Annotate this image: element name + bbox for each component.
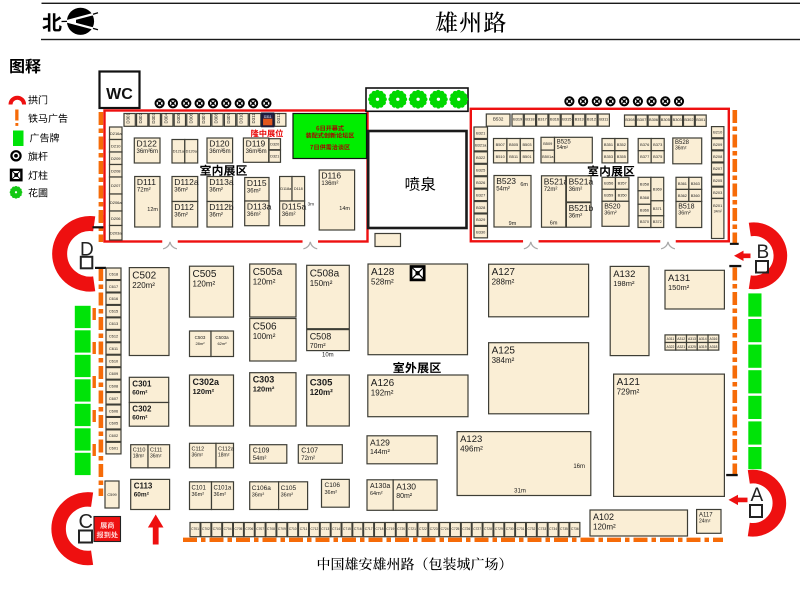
svg-text:36m²: 36m² [252,492,265,498]
svg-text:36m²: 36m² [247,212,261,218]
svg-text:36m²: 36m² [675,146,687,152]
svg-text:B319: B319 [513,116,522,121]
svg-text:36m²: 36m² [174,213,188,219]
svg-text:B303: B303 [673,117,682,122]
svg-text:C729: C729 [495,527,503,531]
svg-text:B326: B326 [476,180,485,185]
svg-text:B521a: B521a [569,176,594,186]
svg-text:B523: B523 [496,176,516,186]
svg-text:384m²: 384m² [492,356,515,365]
svg-text:C107: C107 [301,448,318,455]
svg-text:C106a: C106a [252,485,272,492]
svg-text:C719: C719 [386,527,394,531]
svg-text:A314: A314 [699,337,707,341]
svg-text:24m²: 24m² [699,519,711,525]
svg-text:60m²: 60m² [132,415,148,422]
svg-text:C710: C710 [289,527,297,531]
svg-text:B521a: B521a [544,176,569,186]
svg-text:36m²: 36m² [247,189,261,195]
svg-text:12m: 12m [147,207,158,213]
svg-text:A127: A127 [492,267,516,278]
svg-text:A322: A322 [666,345,674,349]
svg-text:C611: C611 [109,346,118,351]
svg-text:D208: D208 [111,168,121,173]
svg-text:288m²: 288m² [492,278,515,287]
svg-text:54m²: 54m² [557,145,569,151]
svg-text:192m²: 192m² [371,389,394,398]
svg-text:B350: B350 [618,193,628,198]
svg-text:C106: C106 [325,482,341,489]
svg-text:100m²: 100m² [253,332,276,341]
svg-text:C728: C728 [484,527,492,531]
svg-text:B376: B376 [640,142,649,147]
svg-text:36m²: 36m² [209,188,223,194]
svg-text:136m²: 136m² [321,181,338,187]
svg-text:D113a: D113a [209,177,234,187]
svg-text:C505a: C505a [253,267,283,278]
svg-text:D119: D119 [246,139,266,149]
svg-text:C506: C506 [253,322,277,333]
svg-text:C302: C302 [132,405,152,414]
svg-text:144m²: 144m² [370,449,391,456]
svg-text:B: B [757,242,770,263]
svg-text:C615: C615 [109,309,118,314]
svg-text:31m: 31m [514,489,526,495]
svg-text:C608: C608 [109,383,118,388]
svg-text:120m²: 120m² [253,278,276,287]
svg-text:120m²: 120m² [193,280,216,289]
svg-text:B321a: B321a [475,143,487,148]
svg-text:D307: D307 [201,113,206,124]
svg-text:D122: D122 [137,139,158,149]
svg-text:C609: C609 [109,371,118,376]
svg-text:36m²: 36m² [209,149,223,155]
svg-text:A313: A313 [688,337,696,341]
svg-text:B359: B359 [604,193,613,198]
svg-text:D209: D209 [111,156,121,161]
svg-text:34m²: 34m² [714,210,723,214]
svg-text:36m²: 36m² [281,492,294,498]
svg-text:C701: C701 [191,527,199,531]
svg-text:36m²: 36m² [137,149,151,155]
svg-text:28m²: 28m² [195,341,205,346]
svg-text:B325: B325 [476,168,485,173]
svg-text:B317: B317 [538,116,547,121]
svg-text:C716: C716 [354,527,362,531]
svg-text:D301: D301 [126,113,131,124]
svg-text:C731: C731 [517,527,525,531]
svg-text:D305: D305 [176,112,181,123]
svg-text:C724: C724 [441,527,449,531]
svg-text:C301: C301 [132,379,152,388]
svg-text:D304: D304 [163,112,168,123]
svg-text:C508a: C508a [310,268,340,279]
svg-text:B308: B308 [625,117,634,122]
svg-text:36m²: 36m² [325,490,338,496]
svg-text:B372: B372 [653,219,662,224]
svg-text:B203: B203 [713,190,722,195]
svg-text:WC: WC [106,86,133,103]
svg-text:36m²: 36m² [246,149,260,155]
svg-text:C707: C707 [256,527,264,531]
svg-text:D118: D118 [294,187,303,191]
svg-text:C605: C605 [109,421,118,426]
svg-text:B330: B330 [476,230,486,235]
svg-text:B353: B353 [604,154,613,159]
svg-text:C713: C713 [321,527,329,531]
svg-text:B307: B307 [637,117,646,122]
svg-text:C736: C736 [571,527,579,531]
svg-text:B318: B318 [525,116,534,121]
svg-text:C612: C612 [109,334,118,339]
svg-text:B509: B509 [543,141,552,146]
svg-text:C503a: C503a [215,335,229,340]
svg-text:C101a: C101a [214,485,232,491]
svg-text:C715: C715 [343,527,351,531]
svg-text:C503: C503 [195,335,206,340]
svg-text:150m²: 150m² [310,279,333,288]
svg-text:A123: A123 [460,434,482,445]
svg-text:B329: B329 [476,217,485,222]
svg-text:A321: A321 [677,345,685,349]
svg-text:C705: C705 [235,527,243,531]
svg-text:A128: A128 [371,267,395,278]
svg-text:120m²: 120m² [253,385,275,394]
svg-text:B363: B363 [691,181,700,186]
svg-text:D112a: D112a [174,177,199,187]
svg-text:A125: A125 [492,346,516,357]
svg-text:B503: B503 [522,142,531,147]
svg-text:B532: B532 [493,117,504,122]
svg-text:D207: D207 [111,183,121,188]
svg-text:C302a: C302a [193,377,221,387]
svg-text:A316: A316 [709,337,717,341]
svg-text:C305: C305 [310,378,333,389]
svg-text:B505: B505 [509,142,518,147]
svg-text:C712: C712 [310,527,318,531]
svg-text:18m²: 18m² [133,454,145,460]
svg-text:B352: B352 [617,142,626,147]
svg-text:D306: D306 [188,112,193,123]
svg-text:A129: A129 [370,437,390,447]
svg-text:C508: C508 [310,332,332,342]
svg-text:C704: C704 [224,527,232,531]
svg-text:70m²: 70m² [310,343,327,350]
svg-text:6m: 6m [150,149,158,155]
svg-text:A130: A130 [396,481,416,491]
svg-text:C708: C708 [267,527,275,531]
svg-text:C303: C303 [253,375,275,385]
svg-text:C602: C602 [109,433,118,438]
svg-text:64m²: 64m² [370,491,383,497]
svg-text:D112: D112 [174,202,194,212]
svg-text:D311: D311 [264,115,272,119]
svg-text:D121a: D121a [173,150,185,154]
svg-text:72m²: 72m² [137,188,151,194]
svg-text:D303: D303 [151,113,156,124]
svg-text:C601: C601 [109,446,118,451]
svg-text:C734: C734 [549,527,557,531]
svg-text:B518: B518 [678,204,694,211]
svg-text:B375: B375 [653,154,662,159]
svg-text:72m²: 72m² [544,187,558,193]
svg-text:C720: C720 [397,527,405,531]
svg-text:36m²: 36m² [209,213,223,219]
svg-text:D216a: D216a [110,131,123,136]
svg-text:B360: B360 [691,193,701,198]
svg-text:B357: B357 [618,181,627,186]
svg-text:10m: 10m [322,353,334,359]
svg-text:C616: C616 [109,296,118,301]
svg-text:C703: C703 [213,527,221,531]
svg-text:9m: 9m [509,221,517,227]
svg-text:B305: B305 [661,117,670,122]
svg-text:198m²: 198m² [613,279,635,288]
svg-text:3m: 3m [308,202,315,208]
svg-text:B356: B356 [604,181,613,186]
svg-text:D321: D321 [270,155,279,159]
svg-text:C718: C718 [376,527,384,531]
svg-text:B207: B207 [713,166,722,171]
svg-text:528m²: 528m² [371,278,394,287]
svg-text:A: A [751,485,764,506]
svg-text:D115: D115 [247,178,267,188]
svg-text:36m²: 36m² [214,492,227,498]
svg-text:C617: C617 [109,284,118,289]
svg-text:C709: C709 [278,527,286,531]
svg-text:B327: B327 [476,192,485,197]
svg-text:C733: C733 [538,527,546,531]
svg-text:36m²: 36m² [604,210,617,216]
svg-text:D206: D206 [111,216,121,221]
svg-text:C706: C706 [245,527,253,531]
svg-text:60m²: 60m² [132,389,148,396]
svg-text:36m²: 36m² [150,454,162,460]
svg-text:B210: B210 [713,130,723,135]
svg-text:A311: A311 [667,337,675,341]
svg-text:B369: B369 [653,187,662,192]
svg-text:B306: B306 [649,117,658,122]
svg-text:B205: B205 [713,178,722,183]
svg-text:D311: D311 [251,113,256,124]
svg-text:B373: B373 [653,142,662,147]
svg-text:120m²: 120m² [310,388,333,397]
svg-text:C711: C711 [300,527,308,531]
svg-text:B201: B201 [713,203,722,208]
svg-text:B520: B520 [604,203,620,210]
svg-text:C618: C618 [109,271,118,276]
svg-text:D120: D120 [209,139,230,149]
svg-text:B208: B208 [713,154,722,159]
svg-text:B302: B302 [684,117,693,122]
svg-text:B371: B371 [653,206,662,211]
svg-text:B511: B511 [509,154,518,159]
svg-text:496m²: 496m² [460,445,483,454]
svg-text:D115a: D115a [282,202,307,212]
svg-text:B322: B322 [476,155,485,160]
svg-text:6m: 6m [258,149,266,155]
svg-text:B370: B370 [640,219,650,224]
svg-text:54m²: 54m² [253,456,267,462]
svg-text:D206a: D206a [110,200,123,205]
svg-text:A319: A319 [699,345,707,349]
svg-text:C105: C105 [281,485,297,492]
svg-text:36m²: 36m² [192,492,205,498]
svg-text:C607: C607 [109,396,118,401]
svg-text:D112b: D112b [209,202,234,212]
svg-text:C606: C606 [109,408,118,413]
svg-text:B316: B316 [550,116,559,121]
svg-text:C101: C101 [192,485,207,491]
svg-text:6m: 6m [222,149,230,155]
svg-text:B501: B501 [522,154,531,159]
svg-text:120m²: 120m² [193,387,215,396]
svg-text:C702: C702 [202,527,210,531]
svg-text:B362: B362 [678,193,687,198]
svg-text:A121: A121 [617,377,641,388]
svg-text:B355: B355 [617,154,626,159]
svg-text:D111: D111 [137,177,156,187]
svg-text:150m²: 150m² [668,283,690,292]
svg-text:C610: C610 [109,358,119,363]
svg-text:C723: C723 [430,527,438,531]
svg-text:36m²: 36m² [192,452,204,458]
svg-text:B521b: B521b [569,203,594,213]
svg-text:C502: C502 [132,271,156,282]
svg-text:B313: B313 [575,116,584,121]
svg-text:6m: 6m [520,182,528,188]
svg-text:D320: D320 [270,143,279,147]
svg-text:36m²: 36m² [569,187,583,193]
svg-text:14m: 14m [339,206,350,212]
svg-text:B301: B301 [696,117,705,122]
svg-text:B377: B377 [640,154,649,159]
svg-text:36m²: 36m² [282,212,296,218]
svg-text:729m²: 729m² [617,388,640,397]
svg-text:120m²: 120m² [593,523,616,532]
svg-text:A130a: A130a [370,483,390,490]
svg-text:C725: C725 [452,527,460,531]
svg-text:C714: C714 [332,527,340,531]
svg-text:D203a: D203a [110,230,123,235]
svg-text:B209: B209 [713,142,722,147]
svg-text:A325: A325 [688,345,696,349]
svg-text:D308: D308 [214,112,219,123]
svg-text:C505: C505 [193,269,217,280]
svg-text:6m: 6m [550,221,558,227]
svg-text:D118a: D118a [280,187,292,191]
svg-text:B351: B351 [604,142,613,147]
svg-text:D113a: D113a [247,202,272,212]
svg-text:B311: B311 [599,116,608,121]
svg-text:B368: B368 [640,195,649,200]
svg-text:36m²: 36m² [174,188,188,194]
svg-text:C735: C735 [560,527,568,531]
svg-text:B361: B361 [678,181,687,186]
svg-text:D120a: D120a [186,150,198,154]
svg-text:C722: C722 [419,527,427,531]
svg-text:18m²: 18m² [218,452,230,458]
svg-text:220m²: 220m² [132,281,155,290]
svg-text:C721: C721 [408,527,416,531]
svg-text:62m²: 62m² [217,341,227,346]
svg-text:C726: C726 [462,527,470,531]
svg-text:D310: D310 [239,112,244,123]
svg-text:54m²: 54m² [496,187,510,193]
svg-text:72m²: 72m² [301,456,315,462]
svg-text:B366: B366 [640,208,649,213]
svg-text:36m²: 36m² [569,214,583,220]
svg-text:A318: A318 [709,345,717,349]
svg-text:C113: C113 [134,481,153,490]
svg-text:80m²: 80m² [396,493,413,500]
svg-text:B315: B315 [562,116,571,121]
svg-text:C109: C109 [253,448,270,455]
svg-text:D302: D302 [138,112,143,123]
svg-text:B321: B321 [476,130,485,135]
svg-text:D309: D309 [226,113,231,124]
svg-text:C732: C732 [527,527,535,531]
svg-text:C730: C730 [506,527,514,531]
svg-text:B507: B507 [496,142,505,147]
svg-text:D116: D116 [321,171,341,181]
svg-text:16m: 16m [573,464,585,470]
svg-text:B312: B312 [587,116,596,121]
svg-text:C727: C727 [473,527,481,531]
svg-text:60m²: 60m² [134,491,150,498]
svg-text:D313: D313 [276,112,281,123]
svg-text:B358: B358 [640,182,649,187]
svg-text:B328: B328 [476,205,485,210]
svg-text:C717: C717 [365,527,373,531]
svg-text:B501a: B501a [542,154,554,159]
svg-text:B510: B510 [496,154,506,159]
svg-text:A126: A126 [371,378,395,389]
svg-text:A102: A102 [593,512,614,522]
svg-text:D210: D210 [111,143,121,148]
svg-text:A312: A312 [677,337,685,341]
svg-text:36m²: 36m² [678,211,691,217]
svg-text:C613: C613 [109,321,118,326]
svg-text:C599: C599 [107,492,116,497]
